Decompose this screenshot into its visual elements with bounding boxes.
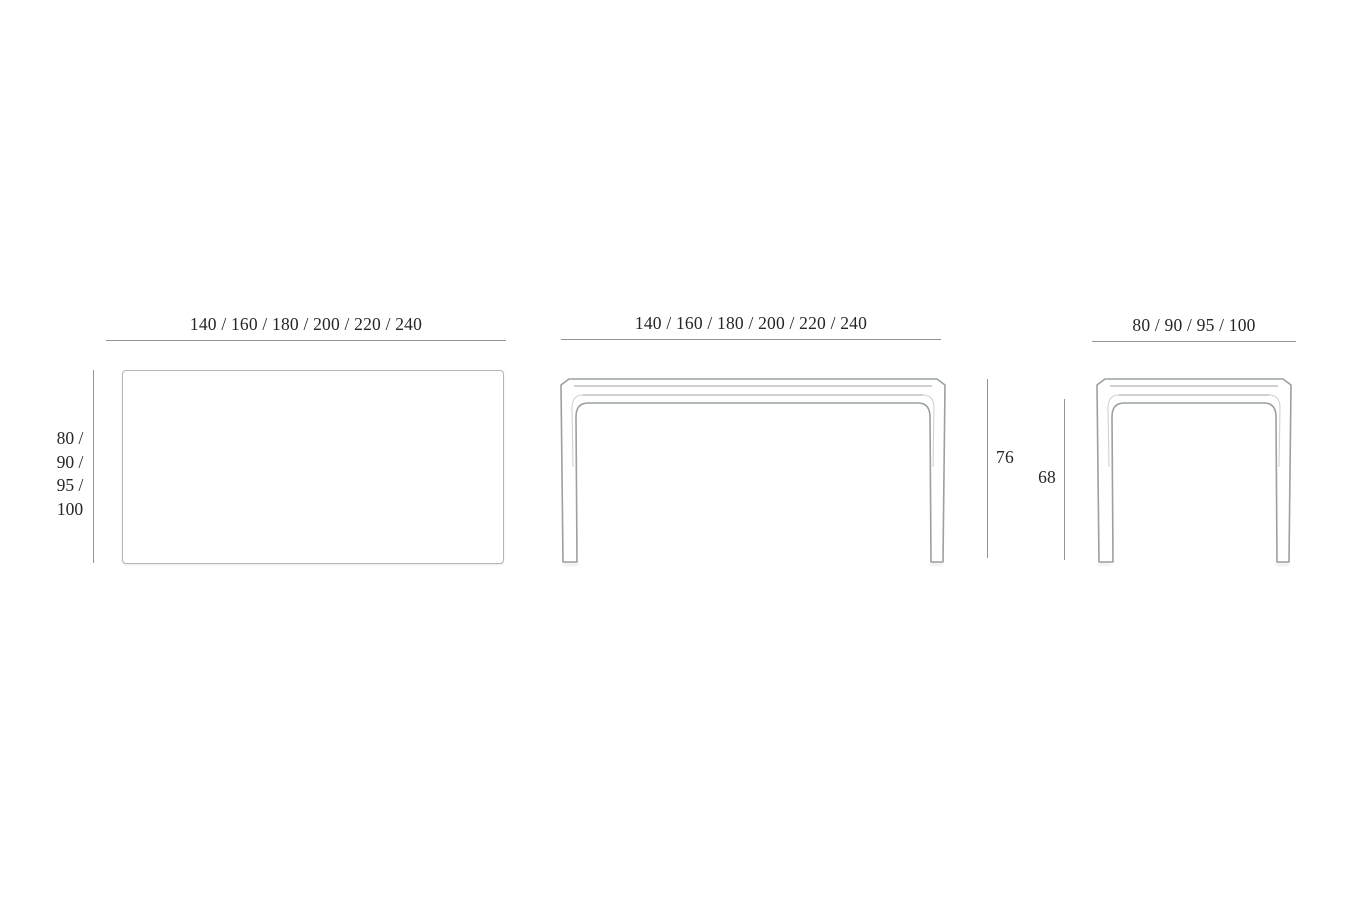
clearance-height-dimension-line	[1064, 399, 1065, 560]
plan-depth-dimension-line-3: 95 /	[45, 474, 95, 498]
table-front-silhouette	[561, 379, 945, 562]
clearance-height-label: 68	[1030, 468, 1056, 486]
plan-depth-dimension-line	[93, 370, 94, 563]
plan-width-dimension-label: 140 / 160 / 180 / 200 / 220 / 240	[106, 315, 506, 333]
dimension-diagram: 140 / 160 / 180 / 200 / 220 / 240 80 / 9…	[0, 0, 1350, 900]
front-elevation-drawing	[553, 372, 953, 572]
table-side-silhouette	[1097, 379, 1291, 562]
tabletop-plan-outline	[122, 370, 504, 564]
side-depth-dimension-label: 80 / 90 / 95 / 100	[1092, 316, 1296, 334]
plan-depth-dimension-line-2: 90 /	[45, 451, 95, 475]
foot-shadow	[562, 563, 579, 566]
foot-shadow	[928, 563, 945, 566]
side-elevation-drawing	[1088, 372, 1303, 572]
plan-depth-dimension-line-4: 100	[45, 498, 95, 522]
foot-shadow	[1097, 563, 1112, 566]
front-width-dimension-line	[561, 339, 941, 340]
overall-height-dimension-line	[987, 379, 988, 558]
front-width-dimension-label: 140 / 160 / 180 / 200 / 220 / 240	[561, 314, 941, 332]
foot-shadow	[1275, 563, 1290, 566]
plan-depth-dimension-label: 80 / 90 / 95 / 100	[45, 427, 95, 521]
overall-height-label: 76	[996, 448, 1014, 466]
side-depth-dimension-line	[1092, 341, 1296, 342]
plan-depth-dimension-line-1: 80 /	[45, 427, 95, 451]
plan-width-dimension-line	[106, 340, 506, 341]
